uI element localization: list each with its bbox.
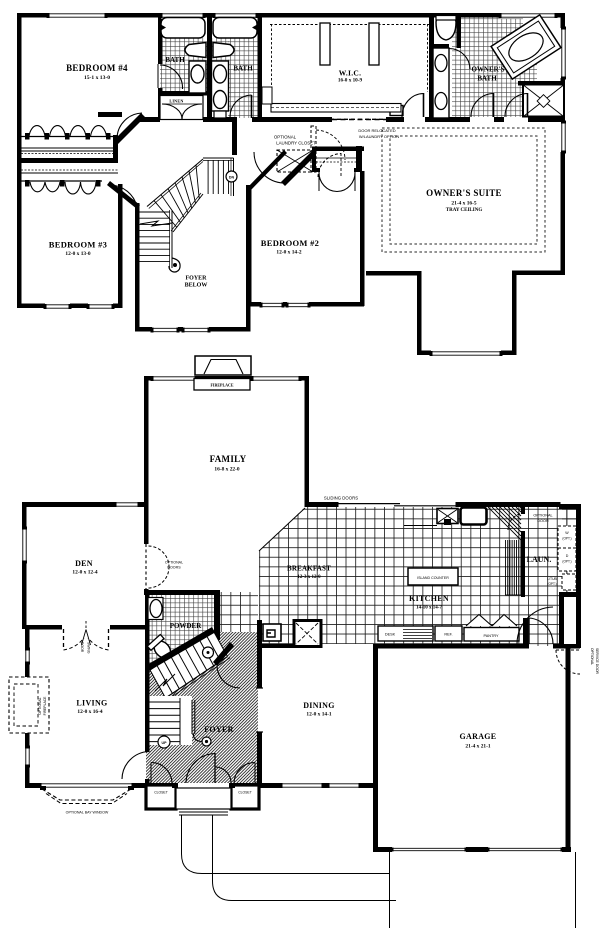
- svg-text:DN: DN: [229, 176, 235, 180]
- svg-text:FOYER: FOYER: [186, 276, 208, 282]
- svg-text:DOOR: DOOR: [80, 642, 84, 653]
- svg-text:12-0 x 14-1: 12-0 x 14-1: [306, 712, 331, 718]
- svg-text:12-0 x 16-4: 12-0 x 16-4: [77, 709, 102, 715]
- svg-text:12-0 x 12-4: 12-0 x 12-4: [72, 570, 97, 576]
- svg-text:LIVING: LIVING: [76, 699, 107, 708]
- svg-text:OPTIONAL: OPTIONAL: [165, 561, 183, 565]
- svg-text:OPTIONAL: OPTIONAL: [274, 135, 297, 140]
- svg-text:PANTRY: PANTRY: [483, 634, 499, 638]
- svg-text:DEN: DEN: [75, 559, 93, 568]
- svg-text:LINEN: LINEN: [169, 98, 183, 103]
- svg-text:KITCHEN: KITCHEN: [409, 594, 449, 603]
- svg-text:14-10 x 14-7: 14-10 x 14-7: [416, 606, 442, 611]
- svg-text:OPTIONAL: OPTIONAL: [533, 514, 552, 518]
- svg-text:FOYER: FOYER: [204, 725, 234, 734]
- svg-text:ISLAND COUNTER: ISLAND COUNTER: [417, 576, 449, 580]
- svg-text:W/LAUNDRY OPTION: W/LAUNDRY OPTION: [359, 134, 399, 139]
- svg-text:DINING: DINING: [303, 701, 335, 710]
- svg-text:DESK: DESK: [385, 633, 396, 637]
- svg-text:21-4 x 16-5: 21-4 x 16-5: [451, 201, 476, 207]
- svg-text:BEDROOM #2: BEDROOM #2: [261, 238, 320, 248]
- svg-text:BELOW: BELOW: [185, 283, 208, 289]
- svg-text:OWNER'S: OWNER'S: [471, 66, 504, 74]
- svg-text:BEDROOM #4: BEDROOM #4: [66, 63, 128, 73]
- svg-text:(OPT.): (OPT.): [547, 582, 556, 586]
- svg-text:FIREPLACE: FIREPLACE: [210, 383, 233, 388]
- svg-text:16-0 x 10-9: 16-0 x 10-9: [338, 78, 363, 84]
- svg-text:16-8 x 22-0: 16-8 x 22-0: [214, 467, 239, 473]
- svg-text:BATH: BATH: [165, 56, 185, 64]
- svg-text:15-1 x 13-0: 15-1 x 13-0: [84, 75, 110, 81]
- svg-text:BEDROOM #3: BEDROOM #3: [49, 240, 108, 250]
- svg-text:D: D: [566, 554, 569, 558]
- svg-text:BREAKFAST: BREAKFAST: [287, 565, 331, 573]
- svg-text:OPTIONAL: OPTIONAL: [590, 648, 594, 665]
- svg-text:OPTIONAL BAY WINDOW: OPTIONAL BAY WINDOW: [66, 811, 109, 815]
- svg-text:BATH: BATH: [233, 65, 253, 73]
- svg-text:12-3 x 12-0: 12-3 x 12-0: [297, 575, 321, 580]
- svg-text:LAUN.: LAUN.: [527, 555, 552, 564]
- svg-text:12-0 x 13-0: 12-0 x 13-0: [65, 251, 90, 257]
- svg-text:CLOSET: CLOSET: [238, 791, 252, 795]
- svg-text:OPTIONAL: OPTIONAL: [38, 697, 42, 714]
- svg-text:W: W: [565, 531, 569, 535]
- svg-text:BATH: BATH: [477, 75, 497, 83]
- svg-text:L/TUB: L/TUB: [547, 577, 557, 581]
- svg-text:DOOR RELOCATED: DOOR RELOCATED: [358, 128, 395, 133]
- svg-text:UP: UP: [162, 741, 168, 745]
- svg-text:SWING: SWING: [87, 642, 91, 654]
- svg-text:CLOSET: CLOSET: [154, 791, 168, 795]
- svg-text:FIREPLACE: FIREPLACE: [43, 696, 47, 716]
- svg-text:REF.: REF.: [444, 633, 452, 637]
- svg-text:SERVICE DOOR: SERVICE DOOR: [595, 648, 599, 674]
- svg-text:LAUNDRY CLOSET: LAUNDRY CLOSET: [276, 141, 316, 146]
- svg-text:TRAY CEILING: TRAY CEILING: [446, 208, 483, 213]
- svg-text:DOORS: DOORS: [167, 566, 181, 570]
- svg-text:12-0 x 14-2: 12-0 x 14-2: [276, 250, 301, 256]
- svg-text:21-4 x 21-1: 21-4 x 21-1: [465, 744, 490, 750]
- svg-text:FAMILY: FAMILY: [210, 454, 247, 464]
- svg-text:(OPT.): (OPT.): [562, 537, 571, 541]
- svg-text:OWNER'S SUITE: OWNER'S SUITE: [426, 188, 502, 198]
- svg-text:POWDER: POWDER: [170, 622, 202, 630]
- svg-text:GARAGE: GARAGE: [460, 732, 497, 741]
- svg-text:(OPT.): (OPT.): [562, 560, 571, 564]
- svg-text:SLIDING DOORS: SLIDING DOORS: [324, 496, 358, 501]
- svg-text:DOOR: DOOR: [537, 519, 549, 523]
- svg-text:W.I.C.: W.I.C.: [339, 69, 362, 78]
